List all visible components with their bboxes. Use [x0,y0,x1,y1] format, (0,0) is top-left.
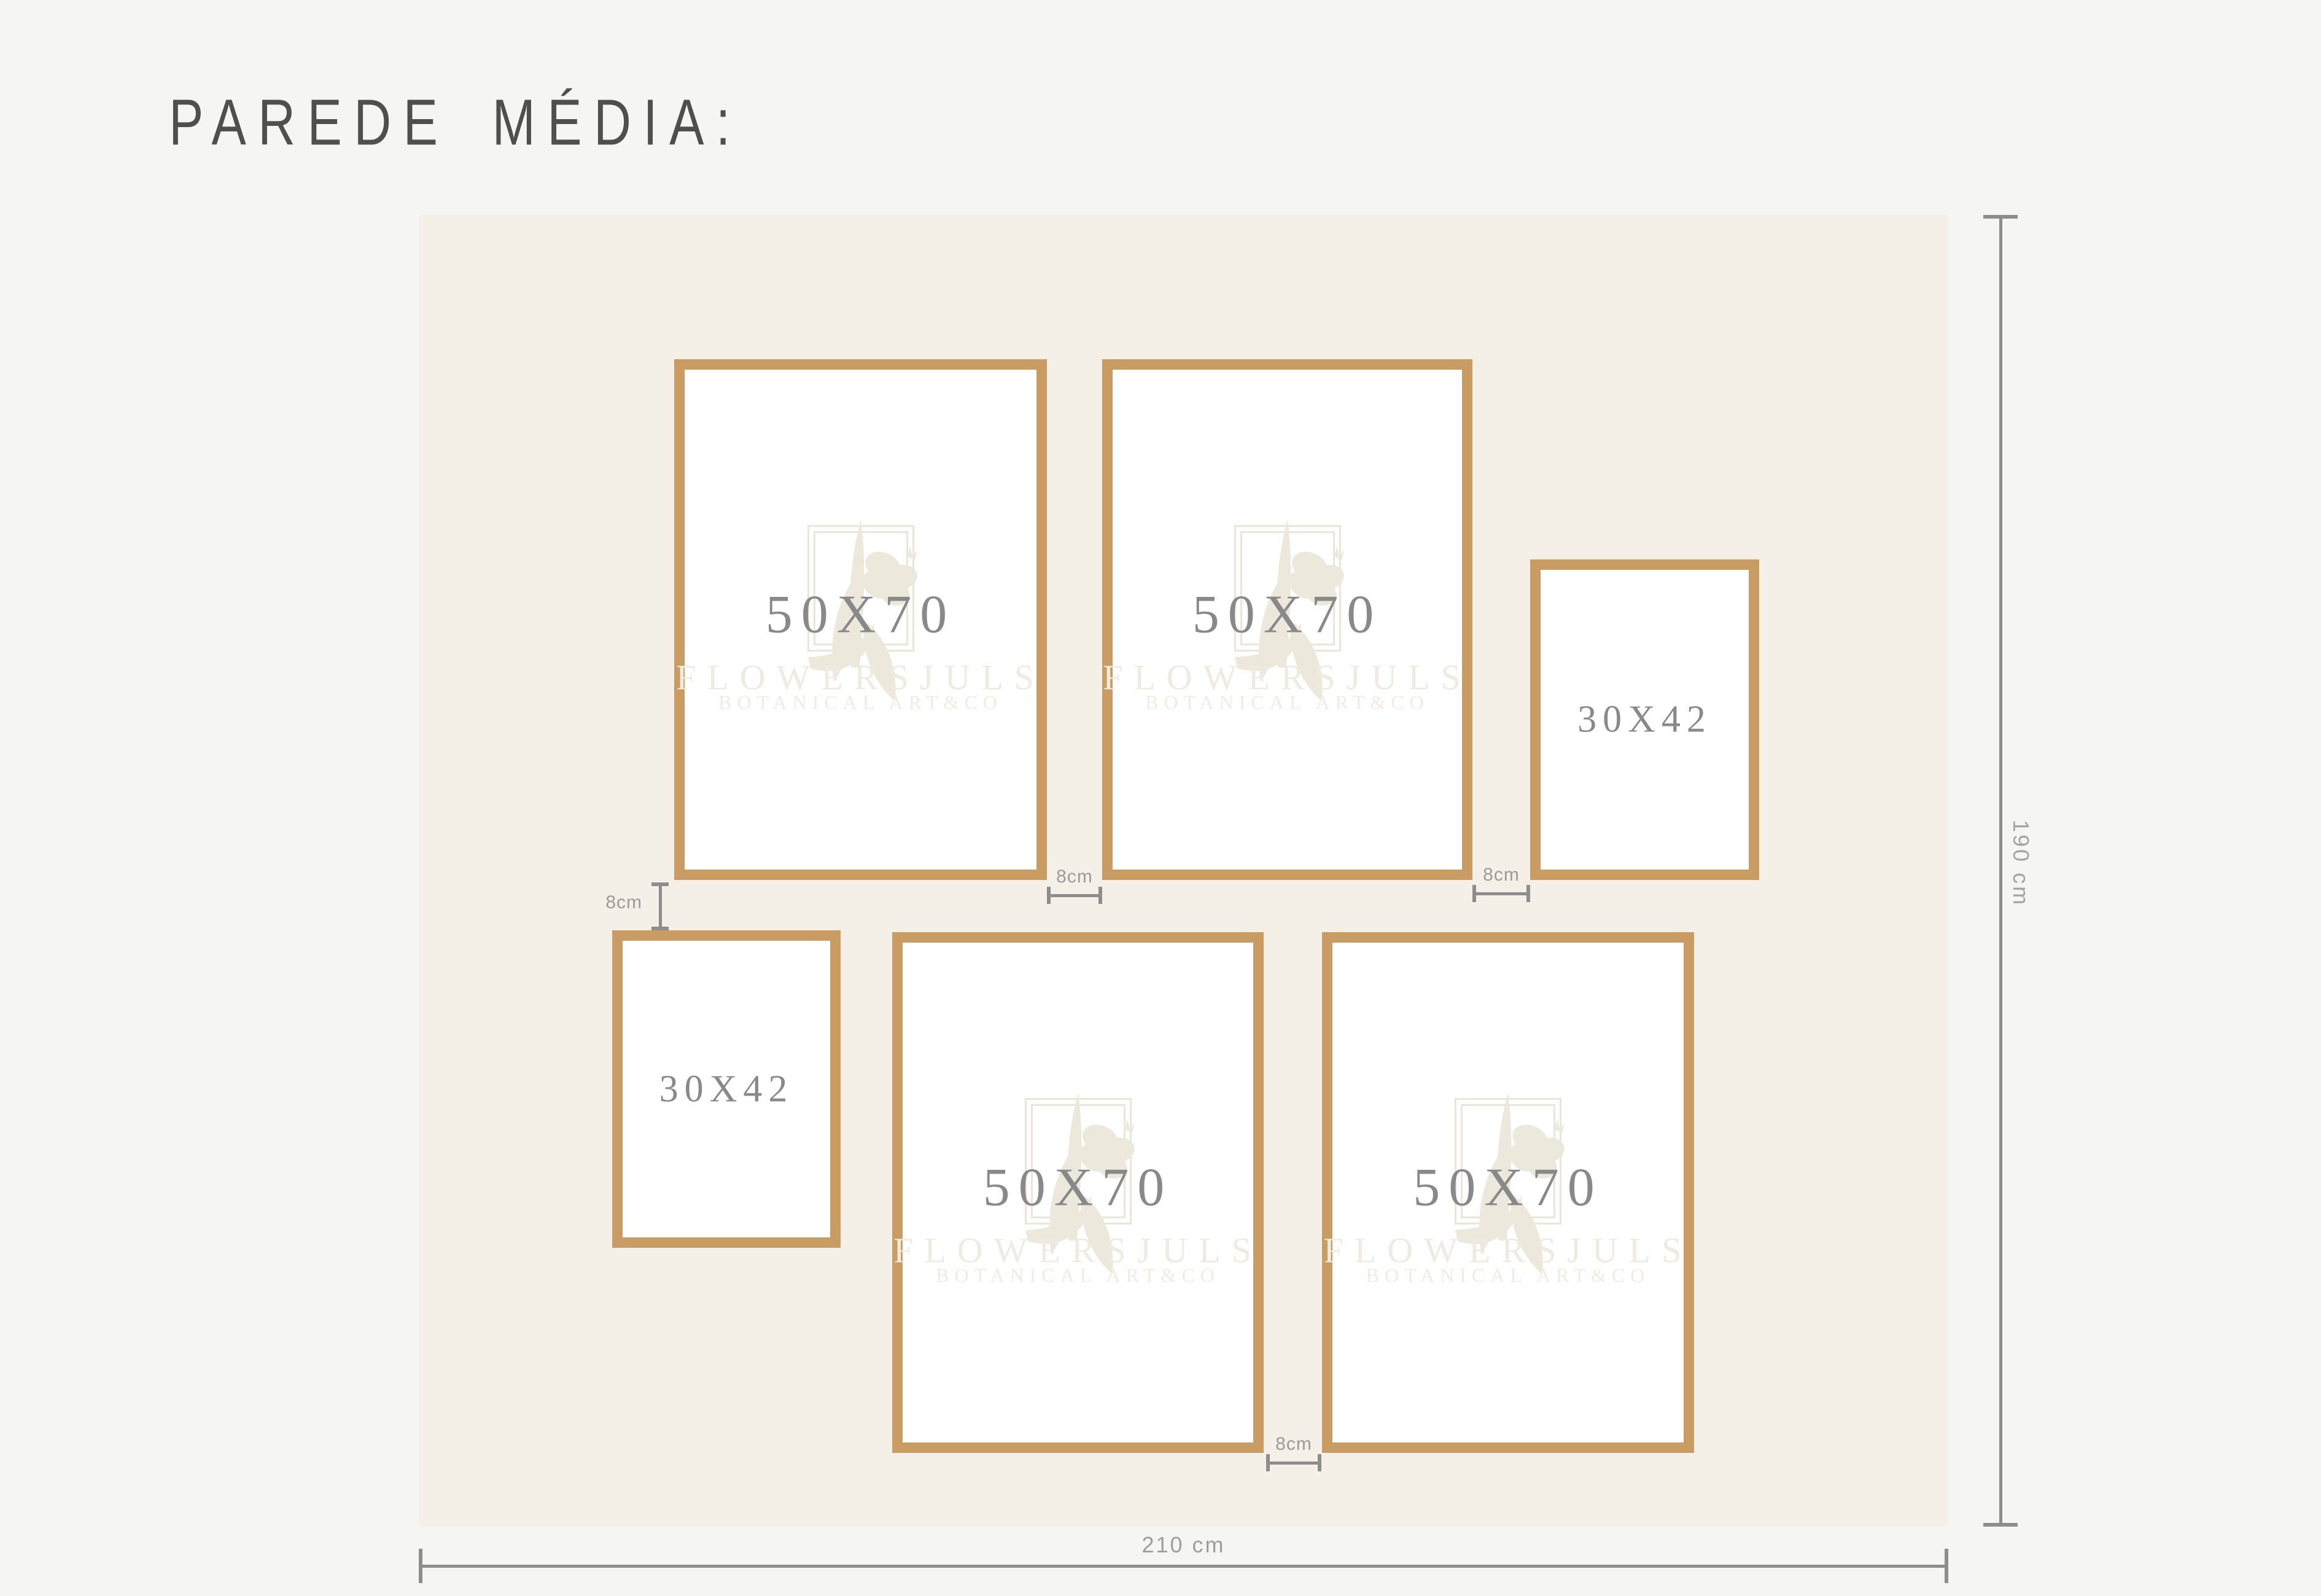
gap-measure-line-top-left [1047,894,1102,897]
frame-bottom-right-50x70: FLOWERSJULS BOTANICAL ART&CO 50X70 [1322,932,1694,1453]
gap-measure-line-vertical [659,882,662,930]
frame-top-left-50x70: FLOWERSJULS BOTANICAL ART&CO 50X70 [674,359,1047,880]
watermark-subtitle: BOTANICAL ART&CO [936,1264,1220,1287]
frame-size-label: 50X70 [1413,1157,1603,1219]
frame-bottom-left-30x42: 30X42 [612,930,841,1248]
wall-width-measure-line [419,1565,1948,1568]
gap-measure-line-bottom [1266,1462,1321,1465]
frame-size-label: 50X70 [983,1157,1173,1219]
frame-size-label: 30X42 [659,1067,794,1111]
wall-width-label: 210 cm [419,1532,1948,1558]
watermark-subtitle: BOTANICAL ART&CO [1366,1264,1650,1287]
watermark-subtitle: BOTANICAL ART&CO [1145,691,1429,714]
gap-measure-label: 8cm [1465,864,1538,886]
gap-measure-label: 8cm [1259,1433,1329,1455]
wall-height-measure-line [1999,215,2002,1527]
gap-measure-label: 8cm [564,892,642,914]
wall-height-label: 190 cm [2008,820,2034,907]
gallery-wall-layout-page: PAREDE MÉDIA: FLOWERSJULS BOTANICAL ART&… [0,0,2321,1596]
page-title: PAREDE MÉDIA: [169,86,742,160]
gap-measure-line-top-right [1472,892,1530,895]
frame-top-right-30x42: 30X42 [1530,559,1759,880]
frame-size-label: 50X70 [766,584,956,646]
gap-measure-label: 8cm [1038,866,1111,888]
frame-top-middle-50x70: FLOWERSJULS BOTANICAL ART&CO 50X70 [1102,359,1472,880]
frame-bottom-middle-50x70: FLOWERSJULS BOTANICAL ART&CO 50X70 [892,932,1264,1453]
watermark-subtitle: BOTANICAL ART&CO [718,691,1003,714]
frame-size-label: 30X42 [1577,698,1712,742]
frame-size-label: 50X70 [1192,584,1383,646]
